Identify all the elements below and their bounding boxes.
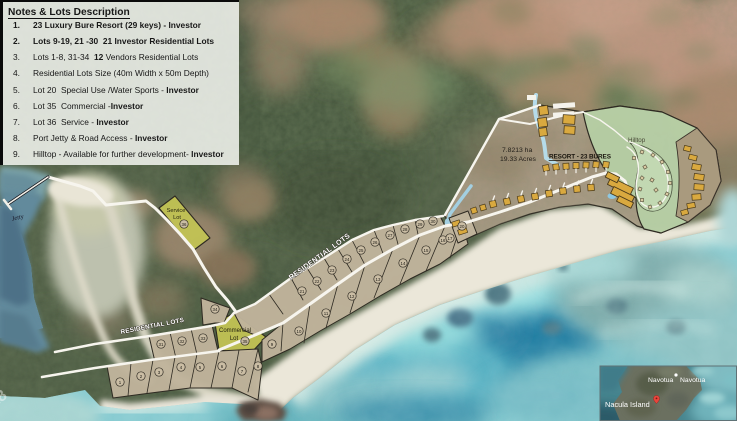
svg-text:Hilltop: Hilltop	[628, 137, 646, 144]
svg-text:16: 16	[441, 238, 446, 243]
svg-text:14: 14	[401, 261, 406, 266]
svg-text:17: 17	[448, 236, 453, 241]
svg-text:35: 35	[243, 339, 248, 344]
svg-text:26: 26	[373, 240, 378, 245]
svg-text:11: 11	[324, 311, 329, 316]
svg-text:15: 15	[424, 248, 429, 253]
svg-text:34: 34	[213, 307, 218, 312]
svg-text:31: 31	[159, 342, 164, 347]
svg-text:28: 28	[403, 227, 408, 232]
svg-text:Navotua: Navotua	[680, 377, 706, 384]
svg-text:12: 12	[350, 294, 355, 299]
svg-text:22: 22	[315, 279, 320, 284]
svg-text:30: 30	[431, 219, 436, 224]
svg-text:32: 32	[180, 339, 185, 344]
svg-text:Navotua: Navotua	[648, 377, 674, 384]
svg-text:RESORT - 23 BURES: RESORT - 23 BURES	[549, 154, 612, 161]
svg-text:21: 21	[300, 289, 305, 294]
svg-text:24: 24	[345, 257, 350, 262]
svg-text:20: 20	[460, 224, 465, 229]
svg-text:36: 36	[182, 222, 187, 227]
svg-text:Nacula Island: Nacula Island	[605, 400, 650, 409]
svg-text:27: 27	[388, 233, 393, 238]
svg-text:Lot: Lot	[173, 215, 181, 221]
svg-text:10: 10	[297, 329, 302, 334]
svg-text:7.8213 ha: 7.8213 ha	[502, 147, 532, 154]
svg-text:33: 33	[201, 336, 206, 341]
svg-text:Lot: Lot	[230, 336, 239, 342]
svg-text:19.33 Acres: 19.33 Acres	[500, 156, 536, 163]
svg-text:13: 13	[376, 277, 381, 282]
svg-text:29: 29	[418, 222, 423, 227]
svg-text:Commercial: Commercial	[219, 328, 251, 334]
svg-text:23: 23	[330, 268, 335, 273]
svg-text:25: 25	[359, 248, 364, 253]
svg-text:Service: Service	[167, 208, 186, 214]
